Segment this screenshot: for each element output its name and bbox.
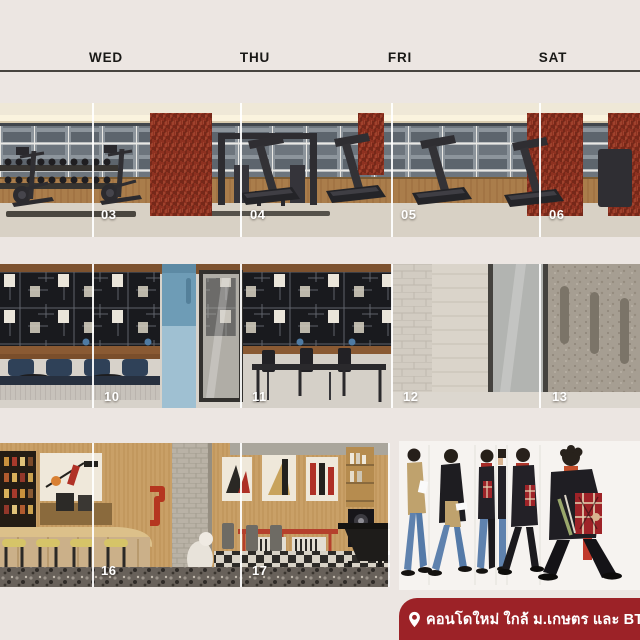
day-label-fri: FRI <box>370 50 430 65</box>
day-label-thu: THU <box>225 50 285 65</box>
header-rule-line <box>0 70 640 72</box>
column-divider <box>92 103 94 237</box>
column-divider <box>240 103 242 237</box>
lounge-rendering <box>0 264 640 408</box>
day-label-sat: SAT <box>523 50 583 65</box>
column-divider <box>391 264 393 408</box>
location-pin-icon <box>408 611 421 628</box>
cafe-rendering <box>0 443 390 587</box>
column-divider <box>240 264 242 408</box>
cafe-photo-row: 16 17 <box>0 443 390 587</box>
date-number: 11 <box>252 389 267 404</box>
date-number: 06 <box>549 207 564 222</box>
gym-rendering <box>0 103 640 237</box>
date-number: 04 <box>250 207 265 222</box>
date-number: 03 <box>101 207 116 222</box>
day-label-wed: WED <box>76 50 136 65</box>
column-divider <box>388 443 390 587</box>
location-banner: คอนโดใหม่ ใกล้ ม.เกษตร และ BTS <box>399 598 640 640</box>
banner-text: คอนโดใหม่ ใกล้ ม.เกษตร และ BTS <box>426 608 640 631</box>
date-number: 17 <box>252 563 267 578</box>
column-divider <box>240 443 242 587</box>
condo-poster: WED THU FRI SAT <box>0 0 640 640</box>
date-number: 16 <box>101 563 116 578</box>
date-number: 13 <box>552 389 567 404</box>
column-divider <box>391 103 393 237</box>
date-number: 10 <box>104 389 119 404</box>
date-number: 12 <box>403 389 418 404</box>
gym-photo-row: 03 04 05 06 <box>0 103 640 237</box>
column-divider <box>539 103 541 237</box>
lounge-photo-row: 10 11 12 13 <box>0 264 640 408</box>
column-divider <box>539 264 541 408</box>
column-divider <box>92 264 94 408</box>
walking-man-figures <box>399 441 640 590</box>
column-divider <box>92 443 94 587</box>
walking-man-collage <box>399 441 640 590</box>
date-number: 05 <box>401 207 416 222</box>
